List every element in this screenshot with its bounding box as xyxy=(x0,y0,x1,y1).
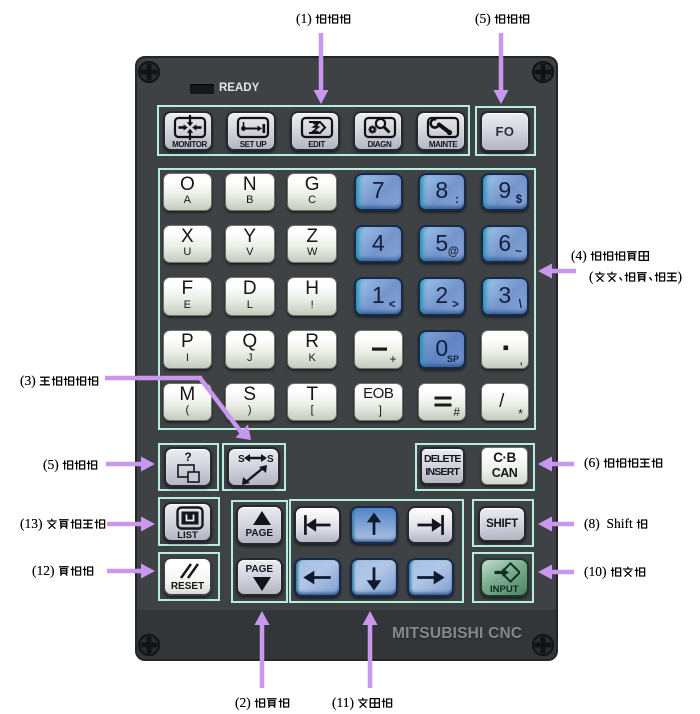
svg-text:S: S xyxy=(238,454,245,465)
svg-text:S: S xyxy=(267,454,274,465)
